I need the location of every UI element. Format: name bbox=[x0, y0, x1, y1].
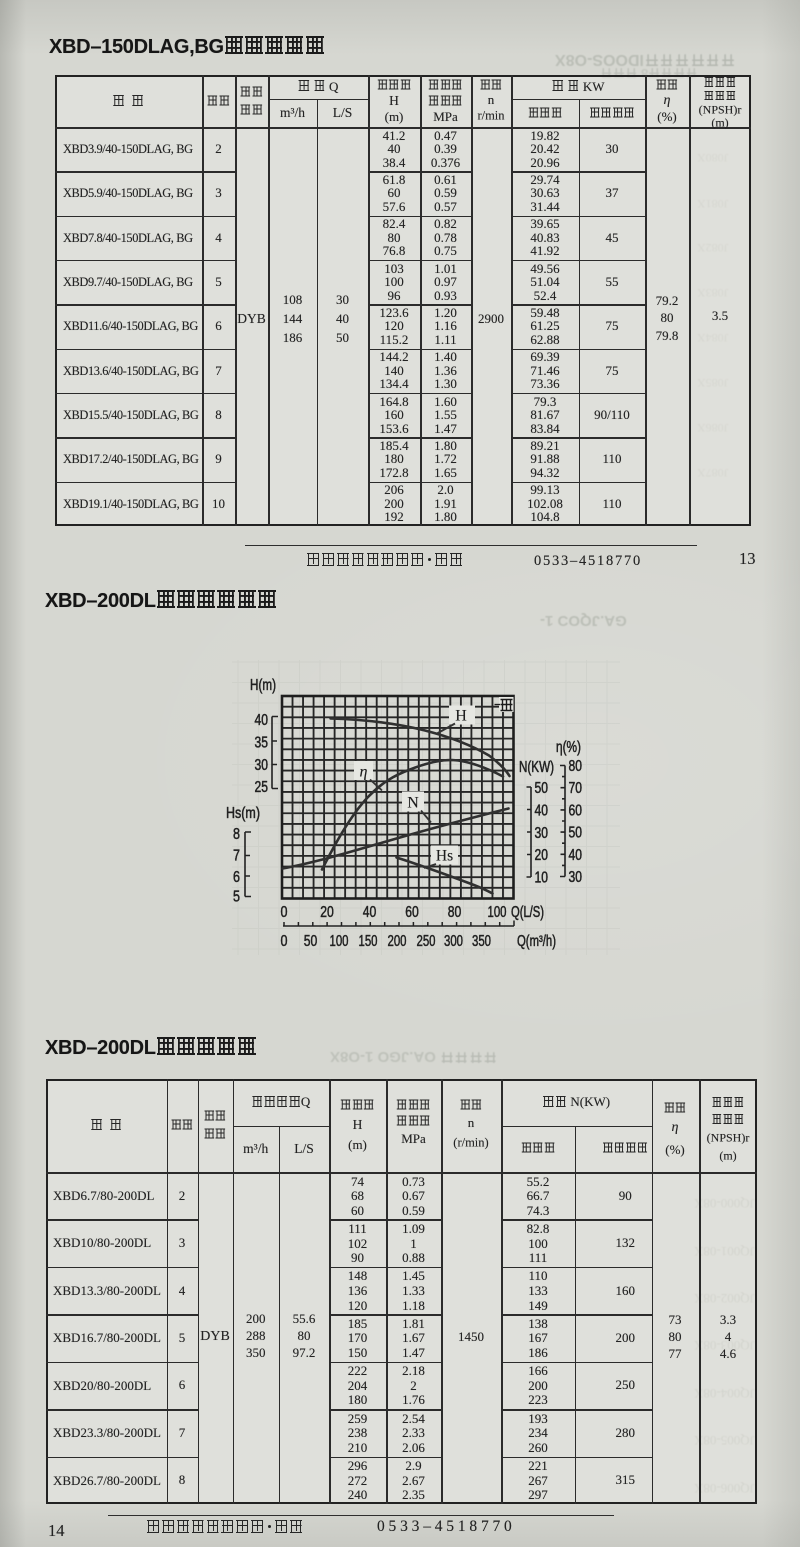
svg-text:7: 7 bbox=[233, 848, 240, 865]
svg-text:30: 30 bbox=[535, 825, 549, 842]
svg-text:10: 10 bbox=[535, 869, 549, 886]
svg-text:Hs: Hs bbox=[436, 848, 453, 865]
svg-text:H: H bbox=[455, 708, 467, 725]
svg-text:50: 50 bbox=[535, 780, 549, 797]
svg-text:250: 250 bbox=[417, 933, 436, 950]
svg-text:35: 35 bbox=[255, 734, 269, 751]
svg-text:150: 150 bbox=[359, 933, 378, 950]
svg-text:40: 40 bbox=[363, 904, 377, 921]
svg-text:η(%): η(%) bbox=[556, 739, 581, 756]
svg-text:20: 20 bbox=[535, 847, 549, 864]
svg-text:30: 30 bbox=[569, 869, 583, 886]
svg-text:70: 70 bbox=[569, 780, 583, 797]
svg-text:20: 20 bbox=[320, 904, 334, 921]
svg-text:80: 80 bbox=[569, 758, 583, 775]
svg-text:H(m): H(m) bbox=[250, 677, 276, 694]
svg-text:100: 100 bbox=[488, 904, 507, 921]
svg-text:300: 300 bbox=[444, 933, 463, 950]
svg-text:8: 8 bbox=[233, 826, 240, 843]
svg-text:40: 40 bbox=[535, 803, 549, 820]
svg-text:N(KW): N(KW) bbox=[519, 759, 554, 776]
svg-text:40: 40 bbox=[255, 712, 269, 729]
svg-text:50: 50 bbox=[304, 933, 318, 950]
svg-text:0: 0 bbox=[281, 933, 288, 950]
svg-text:80: 80 bbox=[448, 904, 462, 921]
svg-text:5: 5 bbox=[233, 889, 240, 906]
svg-text:40: 40 bbox=[569, 847, 583, 864]
svg-text:60: 60 bbox=[569, 802, 583, 819]
svg-text:η: η bbox=[360, 764, 368, 781]
svg-text:Q(m³/h): Q(m³/h) bbox=[517, 933, 556, 950]
svg-text:100: 100 bbox=[330, 933, 349, 950]
svg-text:N: N bbox=[407, 795, 419, 812]
svg-text:200: 200 bbox=[388, 933, 407, 950]
svg-text:350: 350 bbox=[472, 933, 491, 950]
svg-text:25: 25 bbox=[255, 779, 269, 796]
svg-text:Hs(m): Hs(m) bbox=[226, 805, 260, 822]
svg-text:0: 0 bbox=[281, 904, 288, 921]
svg-text:60: 60 bbox=[405, 904, 419, 921]
svg-text:50: 50 bbox=[569, 825, 583, 842]
svg-text:30: 30 bbox=[255, 757, 269, 774]
svg-text:6: 6 bbox=[233, 869, 240, 886]
svg-text:Q(L/S): Q(L/S) bbox=[511, 904, 544, 921]
